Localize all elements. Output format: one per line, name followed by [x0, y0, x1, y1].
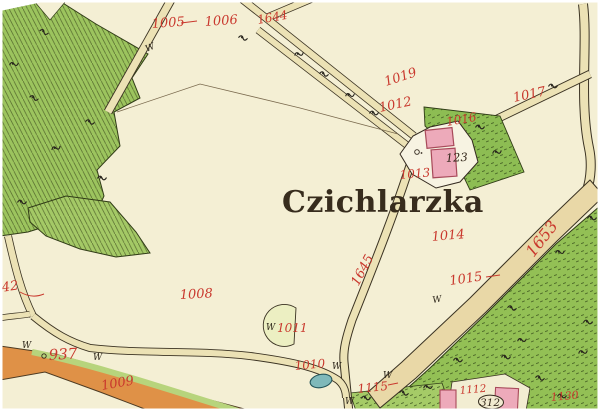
meadow-w-icon: W: [22, 341, 32, 351]
parcel-label-1130: 1130: [550, 389, 579, 404]
oval-number-label: 312: [480, 397, 500, 409]
well-dot-icon: [421, 152, 423, 154]
parcel-label-1008: 1008: [179, 286, 213, 303]
meadow-w-icon: W: [93, 353, 103, 363]
map-canvas: W W W W W W W W 1005 1006 1644 1019 1012…: [0, 0, 600, 411]
parcel-label-1112: 1112: [459, 383, 487, 397]
parcel-label-1011: 1011: [277, 321, 308, 335]
meadow-w-icon: W: [266, 323, 276, 333]
parcel-label-1005: 1005: [151, 15, 185, 32]
parcel-label-1014: 1014: [431, 227, 465, 245]
house-number-label: 123: [445, 150, 468, 165]
building-se-west: [440, 390, 456, 411]
parcel-label-937: 937: [48, 344, 78, 363]
cadastral-map: W W W W W W W W 1005 1006 1644 1019 1012…: [0, 0, 600, 411]
meadow-w-icon: W: [345, 397, 355, 407]
meadow-w-icon: W: [332, 362, 342, 372]
parcel-label-1013: 1013: [399, 165, 431, 182]
parcel-label-1010: 1010: [294, 356, 326, 373]
parcel-label-1006: 1006: [204, 13, 238, 30]
building-north: [425, 128, 454, 149]
place-name-label: Czichlarzka: [282, 185, 484, 220]
